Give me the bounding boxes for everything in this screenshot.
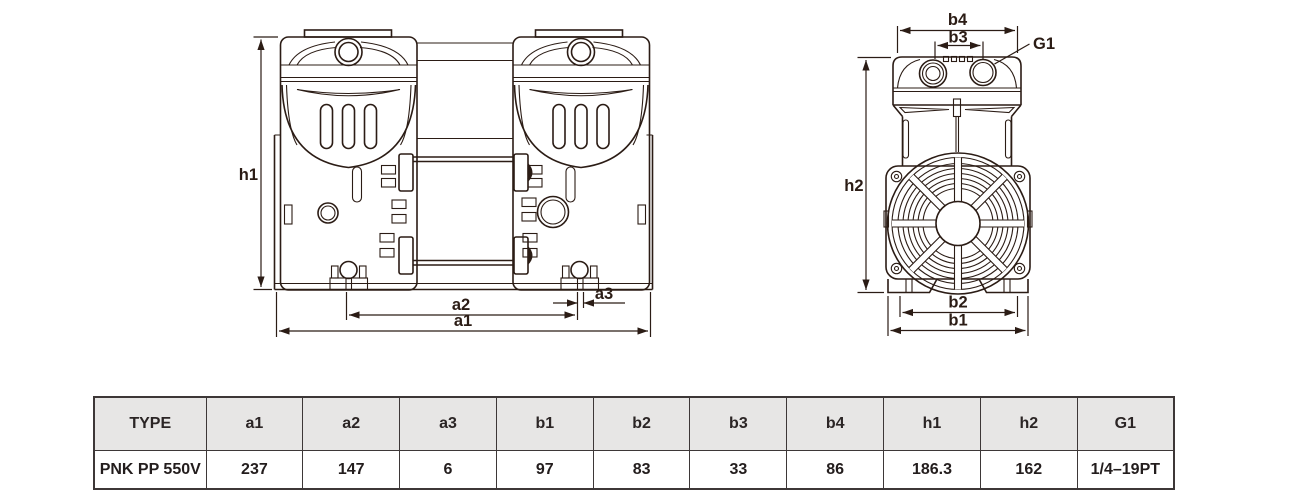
dim-label-a1: a1 xyxy=(454,312,472,330)
pump-head-right xyxy=(513,30,650,290)
motor-housing xyxy=(884,153,1032,294)
fan-grill xyxy=(888,153,1029,294)
cell-a2: 147 xyxy=(303,451,400,490)
dim-label-b1: b1 xyxy=(948,312,967,330)
center-frame xyxy=(413,43,514,265)
vent-slots-left xyxy=(380,166,406,258)
vent-slots-right xyxy=(522,166,542,258)
header-cell-b2: b2 xyxy=(593,397,690,451)
header-cell-a2: a2 xyxy=(303,397,400,451)
cell-b1: 97 xyxy=(496,451,593,490)
cell-b4: 86 xyxy=(787,451,884,490)
dim-label-b4: b4 xyxy=(948,11,968,29)
header-cell-b1: b1 xyxy=(496,397,593,451)
mounting-foot-left xyxy=(330,262,368,290)
header-cell-g1: G1 xyxy=(1077,397,1174,451)
dim-label-b2: b2 xyxy=(948,294,967,312)
header-cell-h2: h2 xyxy=(980,397,1077,451)
header-cell-b4: b4 xyxy=(787,397,884,451)
header-cell-b3: b3 xyxy=(690,397,787,451)
dimension-table: TYPE a1 a2 a3 b1 b2 b3 b4 h1 h2 G1 PNK P… xyxy=(93,396,1175,490)
port-right xyxy=(970,60,996,86)
header-cell-a3: a3 xyxy=(400,397,497,451)
cell-b2: 83 xyxy=(593,451,690,490)
table-header-row: TYPE a1 a2 a3 b1 b2 b3 b4 h1 h2 G1 xyxy=(94,397,1174,451)
dim-label-h1: h1 xyxy=(239,166,258,184)
mounting-foot-right xyxy=(561,262,599,290)
cell-b3: 33 xyxy=(690,451,787,490)
port-left xyxy=(920,60,947,87)
dim-label-b3: b3 xyxy=(948,29,967,47)
dim-label-a3: a3 xyxy=(595,285,613,303)
header-cell-a1: a1 xyxy=(206,397,303,451)
cell-g1: 1/4–19PT xyxy=(1077,451,1174,490)
front-view: h1 a2 a3 a1 xyxy=(239,30,653,337)
pump-head-left xyxy=(281,30,418,290)
table-data-row: PNK PP 550V 237 147 6 97 83 33 86 186.3 … xyxy=(94,451,1174,490)
cell-type: PNK PP 550V xyxy=(94,451,206,490)
cell-a1: 237 xyxy=(206,451,303,490)
side-view: b4 b3 G1 h2 b2 b1 xyxy=(844,11,1055,336)
cell-h1: 186.3 xyxy=(884,451,981,490)
side-head xyxy=(893,57,1021,167)
header-cell-type: TYPE xyxy=(94,397,206,451)
dim-label-g1: G1 xyxy=(1033,35,1055,53)
header-cell-h1: h1 xyxy=(884,397,981,451)
dim-label-h2: h2 xyxy=(844,177,863,195)
technical-drawing: h1 a2 a3 a1 xyxy=(0,0,1300,392)
cell-a3: 6 xyxy=(400,451,497,490)
cell-h2: 162 xyxy=(980,451,1077,490)
